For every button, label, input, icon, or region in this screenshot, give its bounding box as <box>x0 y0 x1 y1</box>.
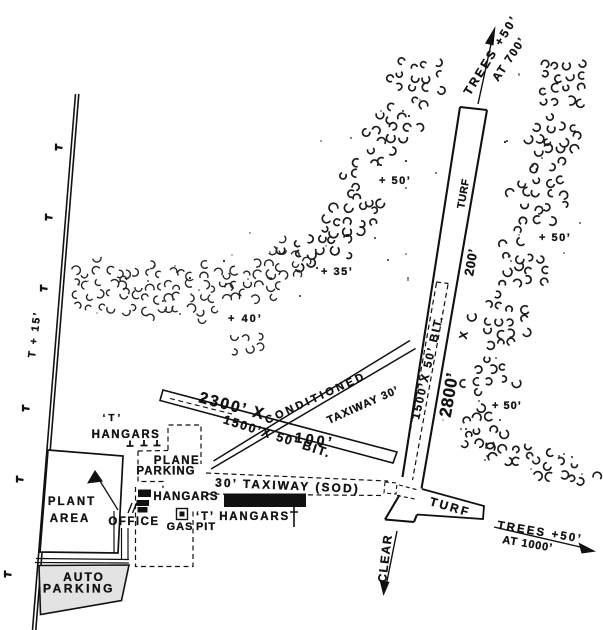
svg-text:HANGARS: HANGARS <box>153 491 218 503</box>
svg-text:PLANT: PLANT <box>48 496 96 508</box>
svg-text:+ 50’: + 50’ <box>492 400 522 412</box>
svg-text:PARKING: PARKING <box>43 582 115 596</box>
svg-text:PARKING: PARKING <box>136 466 195 478</box>
svg-text:+ 35’: + 35’ <box>321 266 353 278</box>
svg-text:‘T’: ‘T’ <box>103 413 124 424</box>
svg-text:+ 40’: + 40’ <box>228 313 263 325</box>
svg-text:OFFICE: OFFICE <box>108 516 159 528</box>
svg-text:AREA: AREA <box>50 513 91 525</box>
svg-text:+ 50’: + 50’ <box>379 175 411 187</box>
svg-text:HANGARS: HANGARS <box>92 429 161 441</box>
svg-text:‘T’ HANGARS: ‘T’ HANGARS <box>196 511 290 523</box>
svg-text:+ 50’: + 50’ <box>539 232 571 244</box>
svg-text:GAS: GAS <box>167 521 194 533</box>
